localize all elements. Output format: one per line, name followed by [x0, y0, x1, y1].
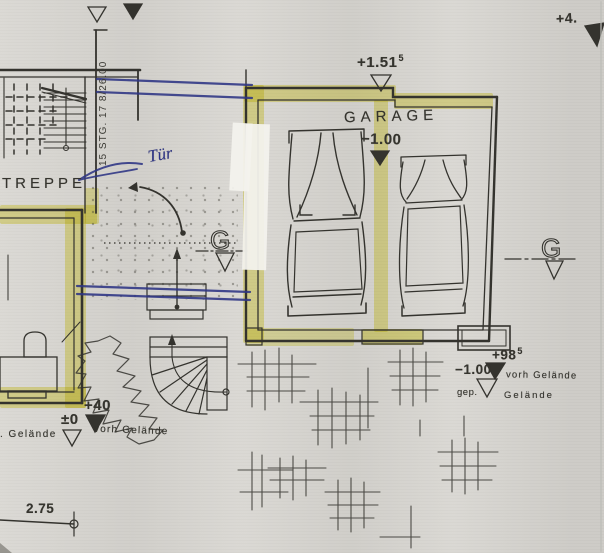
elevation-plus98: +985: [492, 346, 523, 363]
dimension-275-label: 2.75: [26, 501, 54, 516]
stair-spec-label: 15 STG. 17 8/26.00: [98, 36, 114, 166]
vorh-gelaende-right-label: vorh Gelände: [506, 369, 578, 381]
blue-pipe-lines-top: [97, 79, 252, 98]
elevation-garage-floor: −1.00: [361, 131, 402, 149]
elevation-plus40: +40: [84, 397, 111, 414]
treppe-label: TREPPE: [2, 175, 86, 192]
scanned-plan-page: G G: [0, 0, 604, 553]
elevation-garage-entry: +1.515: [357, 53, 404, 71]
elevation-garage-entry-sup: 5: [398, 53, 404, 63]
garage-label: GARAGE: [344, 107, 439, 126]
hand-annotations: [0, 0, 604, 553]
elevation-plus98-sup: 5: [517, 346, 523, 356]
gep-label: gep.: [457, 387, 478, 398]
elevation-zero: ±0: [61, 411, 79, 428]
elevation-plus98-main: +98: [492, 348, 516, 363]
elevation-top-right: +4.: [556, 9, 578, 26]
tuer-note: Tür: [146, 143, 174, 167]
elevation-minus100-right: −1.00: [455, 362, 492, 377]
blue-pipe-lines-middle: [77, 286, 250, 300]
elevation-garage-entry-main: +1.51: [357, 54, 397, 71]
gelaende-right-label: Gelände: [504, 390, 554, 401]
gelaende-left-label: . Gelände: [0, 429, 57, 440]
